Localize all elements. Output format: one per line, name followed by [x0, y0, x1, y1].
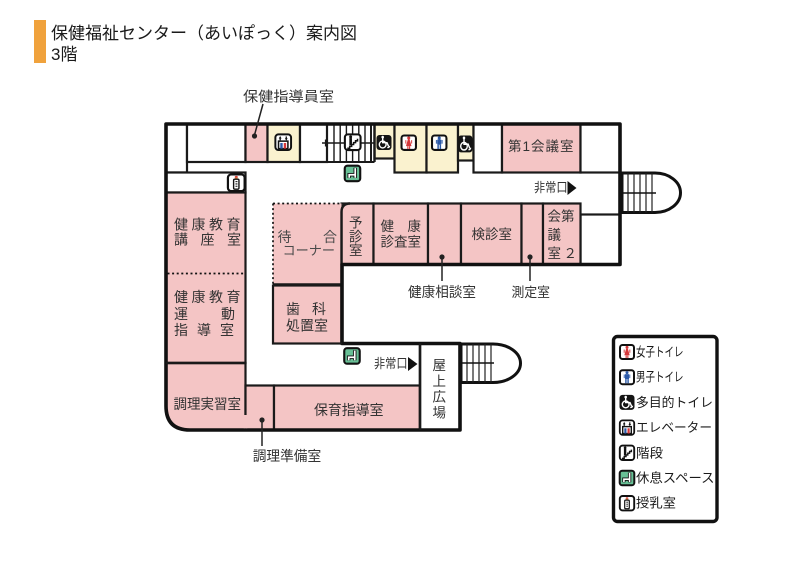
svg-text:健康: 健康 — [381, 218, 435, 234]
svg-text:講座室: 講座室 — [174, 232, 254, 248]
svg-text:室: 室 — [349, 243, 363, 258]
svg-text:男子トイレ: 男子トイレ — [636, 370, 684, 385]
svg-text:非常口: 非常口 — [374, 356, 408, 371]
svg-text:調理実習室: 調理実習室 — [174, 396, 242, 412]
svg-text:屋: 屋 — [433, 358, 447, 373]
svg-text:指導室: 指導室 — [174, 322, 243, 338]
svg-text:室: 室 — [548, 246, 562, 261]
svg-text:２: ２ — [564, 246, 578, 261]
svg-text:予: 予 — [349, 216, 363, 231]
svg-text:保育指導室: 保育指導室 — [314, 402, 384, 418]
svg-text:処置室: 処置室 — [286, 318, 328, 334]
svg-text:運動: 運動 — [174, 306, 268, 322]
svg-text:3階: 3階 — [51, 45, 77, 64]
svg-text:第: 第 — [561, 208, 575, 224]
svg-text:第1会議室: 第1会議室 — [508, 138, 575, 154]
svg-text:女子トイレ: 女子トイレ — [636, 345, 684, 360]
svg-text:階段: 階段 — [636, 445, 663, 460]
svg-text:検診室: 検診室 — [472, 227, 513, 242]
svg-text:測定室: 測定室 — [512, 285, 551, 300]
svg-text:非常口: 非常口 — [534, 180, 568, 195]
svg-text:エレベーター: エレベーター — [636, 420, 712, 435]
svg-text:上: 上 — [433, 374, 447, 389]
svg-text:広: 広 — [433, 390, 447, 405]
svg-text:授乳室: 授乳室 — [636, 496, 676, 511]
svg-text:歯科: 歯科 — [286, 301, 338, 317]
svg-text:健康教育: 健康教育 — [174, 289, 244, 305]
svg-text:保健指導員室: 保健指導員室 — [243, 89, 334, 105]
svg-text:休息スペース: 休息スペース — [636, 471, 715, 486]
svg-text:会: 会 — [548, 209, 562, 224]
svg-text:健康教育: 健康教育 — [174, 217, 244, 233]
svg-text:議: 議 — [548, 227, 562, 243]
svg-text:場: 場 — [433, 405, 447, 420]
svg-text:コーナー: コーナー — [283, 243, 336, 258]
svg-text:調理準備室: 調理準備室 — [253, 448, 322, 464]
svg-text:診査室: 診査室 — [381, 235, 422, 250]
svg-text:保健福祉センター（あいぽっく）案内図: 保健福祉センター（あいぽっく）案内図 — [51, 24, 357, 43]
svg-text:多目的トイレ: 多目的トイレ — [636, 395, 713, 410]
svg-text:健康相談室: 健康相談室 — [408, 284, 476, 300]
